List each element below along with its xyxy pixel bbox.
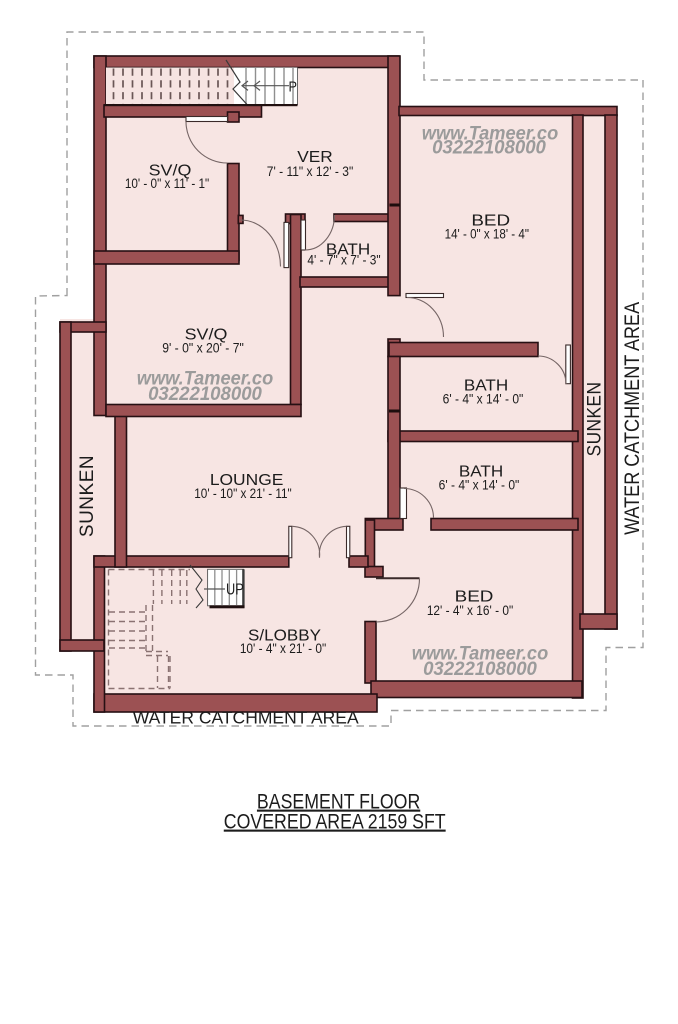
svg-text:14' - 0" x 18' - 4": 14' - 0" x 18' - 4" bbox=[445, 226, 530, 242]
svg-text:4' - 7" x 7' - 3": 4' - 7" x 7' - 3" bbox=[307, 252, 380, 268]
svg-text:03222108000: 03222108000 bbox=[148, 383, 262, 404]
svg-text:SUNKEN: SUNKEN bbox=[584, 382, 605, 457]
svg-text:6' - 4" x 14' - 0": 6' - 4" x 14' - 0" bbox=[443, 391, 524, 407]
svg-text:9' - 0" x 20' - 7": 9' - 0" x 20' - 7" bbox=[162, 340, 244, 356]
svg-text:03222108000: 03222108000 bbox=[423, 658, 537, 679]
svg-text:10' - 0" x 11' - 1": 10' - 0" x 11' - 1" bbox=[125, 175, 210, 191]
svg-text:P: P bbox=[289, 77, 298, 94]
svg-text:UP: UP bbox=[226, 581, 244, 599]
svg-text:COVERED AREA 2159 SFT: COVERED AREA 2159 SFT bbox=[224, 810, 446, 834]
svg-text:WATER CATCHMENT AREA: WATER CATCHMENT AREA bbox=[133, 708, 359, 728]
svg-text:6' - 4" x 14' - 0": 6' - 4" x 14' - 0" bbox=[439, 477, 520, 493]
svg-text:SUNKEN: SUNKEN bbox=[77, 455, 98, 537]
svg-text:03222108000: 03222108000 bbox=[432, 136, 546, 157]
svg-text:WATER CATCHMENT AREA: WATER CATCHMENT AREA bbox=[621, 301, 645, 535]
svg-text:7' - 11" x 12' - 3": 7' - 11" x 12' - 3" bbox=[267, 163, 354, 179]
svg-text:12' - 4" x 16' - 0": 12' - 4" x 16' - 0" bbox=[427, 602, 514, 618]
svg-text:10' - 10" x 21' - 11": 10' - 10" x 21' - 11" bbox=[194, 485, 292, 501]
svg-text:10' - 4" x 21' - 0": 10' - 4" x 21' - 0" bbox=[240, 640, 327, 656]
